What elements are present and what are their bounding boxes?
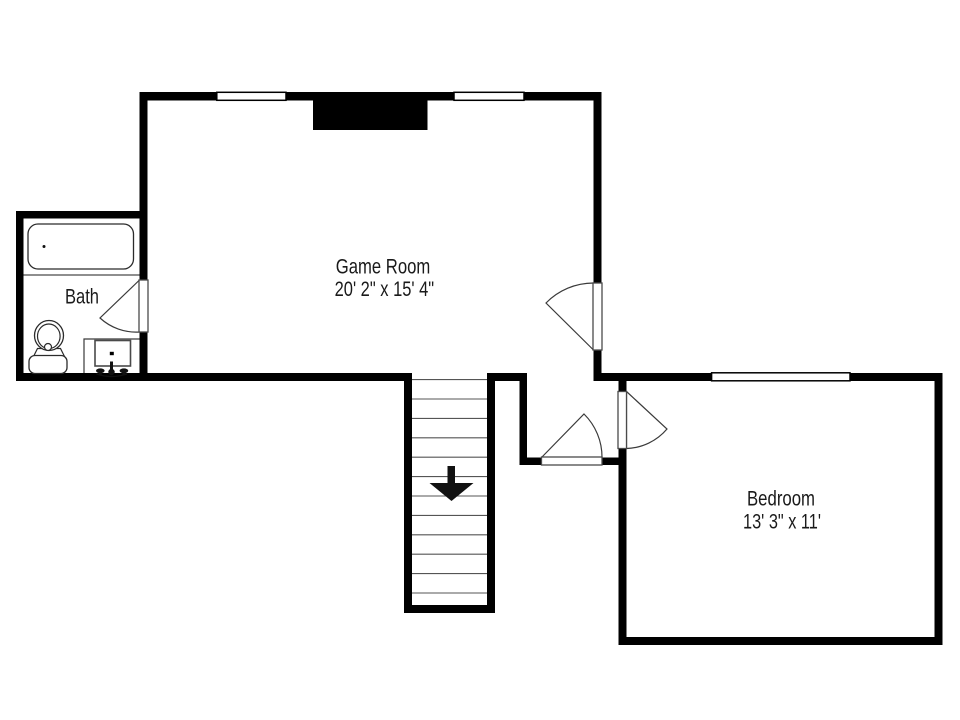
svg-text:13' 3" x 11': 13' 3" x 11' [743, 511, 821, 534]
svg-text:Bedroom: Bedroom [747, 488, 815, 511]
svg-text:20' 2" x 15' 4": 20' 2" x 15' 4" [335, 278, 435, 301]
svg-text:Game Room: Game Room [336, 256, 431, 279]
svg-text:Bath: Bath [65, 286, 99, 309]
